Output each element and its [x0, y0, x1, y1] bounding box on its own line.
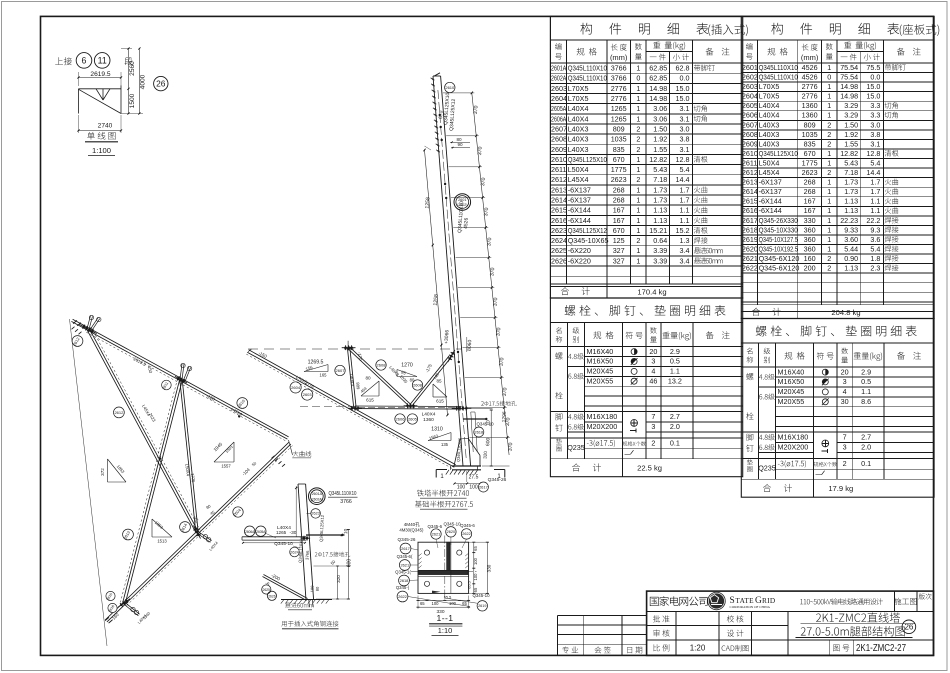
- svg-text:+3066: +3066: [444, 329, 451, 344]
- svg-text:90: 90: [457, 142, 463, 147]
- svg-text:2615: 2615: [551, 206, 567, 215]
- svg-text:330: 330: [804, 216, 816, 225]
- svg-text:1258: 1258: [433, 294, 440, 306]
- svg-text:2604: 2604: [551, 94, 567, 103]
- svg-text:3.0: 3.0: [680, 125, 690, 134]
- svg-text:2: 2: [827, 264, 831, 273]
- svg-text:20: 20: [841, 367, 849, 376]
- svg-text:65.5: 65.5: [468, 581, 472, 588]
- svg-text:160: 160: [804, 254, 816, 263]
- svg-text:L70X5: L70X5: [568, 84, 589, 93]
- svg-text:Q345L110X10: Q345L110X10: [568, 64, 607, 73]
- svg-text:1:100: 1:100: [92, 146, 111, 155]
- svg-text:2.0: 2.0: [670, 422, 680, 431]
- svg-text:65: 65: [462, 601, 467, 606]
- svg-text:370: 370: [486, 237, 493, 246]
- svg-text:TATE: TATE: [735, 596, 754, 605]
- svg-text:12.8: 12.8: [676, 155, 690, 164]
- svg-text:3.1: 3.1: [680, 114, 690, 123]
- svg-text:835: 835: [613, 145, 625, 154]
- svg-text:370: 370: [483, 207, 490, 216]
- svg-text:1360: 1360: [802, 111, 818, 120]
- svg-text:1.1: 1.1: [670, 367, 680, 376]
- svg-text:Q345-26: Q345-26: [398, 537, 416, 542]
- svg-text:1: 1: [636, 216, 640, 225]
- svg-text:3: 3: [651, 422, 655, 431]
- svg-text:2620: 2620: [742, 244, 758, 253]
- svg-text:1360: 1360: [802, 101, 818, 110]
- svg-text:100: 100: [457, 485, 466, 491]
- svg-text:2604: 2604: [742, 92, 758, 101]
- svg-text:2619: 2619: [478, 604, 486, 608]
- svg-text:L40X3: L40X3: [759, 120, 780, 129]
- svg-text:125: 125: [613, 236, 625, 245]
- svg-text:Q345-6: Q345-6: [460, 523, 475, 528]
- svg-text:2621: 2621: [400, 562, 409, 567]
- svg-text:-6X137: -6X137: [759, 178, 782, 187]
- svg-text:2603: 2603: [551, 84, 567, 93]
- svg-text:1.55: 1.55: [653, 145, 667, 154]
- svg-text:L50X4: L50X4: [568, 165, 589, 174]
- svg-text:2601A: 2601A: [312, 492, 323, 496]
- svg-text:2617: 2617: [479, 484, 489, 489]
- svg-text:L40X4: L40X4: [568, 104, 589, 113]
- svg-text:1360: 1360: [423, 417, 434, 423]
- svg-text:1270: 1270: [401, 363, 413, 369]
- svg-text:5.43: 5.43: [653, 165, 667, 174]
- svg-text:65: 65: [473, 546, 478, 551]
- svg-text:1.13: 1.13: [844, 264, 858, 273]
- svg-text:17.9 kg: 17.9 kg: [828, 484, 853, 493]
- svg-text:2610: 2610: [551, 155, 567, 164]
- svg-text:13.2: 13.2: [668, 377, 682, 386]
- svg-text:1296: 1296: [501, 411, 508, 423]
- svg-text:2776: 2776: [802, 92, 818, 101]
- svg-text:20: 20: [649, 347, 657, 356]
- svg-text:370: 370: [489, 267, 496, 276]
- svg-text:7: 7: [843, 433, 847, 442]
- svg-text:2.9: 2.9: [670, 347, 680, 356]
- svg-text:2621: 2621: [432, 532, 440, 536]
- svg-text:2560: 2560: [129, 61, 136, 76]
- svg-text:1:10: 1:10: [438, 626, 452, 635]
- svg-text:(2602A): (2602A): [311, 497, 323, 501]
- svg-text:22.23: 22.23: [840, 216, 858, 225]
- svg-text:14.98: 14.98: [840, 92, 858, 101]
- svg-text:1775: 1775: [190, 473, 196, 483]
- svg-text:Q345L125X12: Q345L125X12: [568, 226, 607, 235]
- svg-text:809: 809: [355, 382, 361, 390]
- svg-text:Q345L110X10: Q345L110X10: [759, 73, 798, 82]
- svg-text:0.1: 0.1: [670, 439, 680, 448]
- svg-text:1.7: 1.7: [680, 196, 690, 205]
- svg-text:3.29: 3.29: [844, 101, 858, 110]
- svg-text:2623: 2623: [802, 168, 818, 177]
- svg-text:2608: 2608: [742, 130, 758, 139]
- svg-text:1310: 1310: [431, 427, 443, 433]
- svg-text:M20X200: M20X200: [778, 443, 809, 452]
- svg-text:62.8: 62.8: [676, 64, 690, 73]
- svg-text:1265: 1265: [276, 530, 287, 535]
- svg-text:2618: 2618: [474, 429, 484, 434]
- svg-text:2621: 2621: [742, 254, 758, 263]
- svg-text:2617: 2617: [742, 216, 758, 225]
- svg-text:2617: 2617: [401, 546, 410, 551]
- svg-text:L40X3: L40X3: [568, 135, 589, 144]
- svg-text:2740: 2740: [98, 123, 113, 130]
- svg-text:L40X4: L40X4: [568, 114, 589, 123]
- svg-text:2613: 2613: [551, 185, 567, 194]
- svg-text:1: 1: [827, 187, 831, 196]
- svg-text:2607: 2607: [551, 125, 567, 134]
- svg-text:10: 10: [485, 420, 490, 426]
- svg-text:0: 0: [636, 74, 640, 83]
- svg-text:2601A: 2601A: [551, 64, 566, 73]
- svg-text:1.7: 1.7: [680, 185, 690, 194]
- svg-text:2.3: 2.3: [870, 264, 880, 273]
- svg-text:2606A: 2606A: [245, 530, 255, 534]
- svg-text:2605A: 2605A: [551, 104, 566, 113]
- svg-text:4M30(Q345): 4M30(Q345): [399, 527, 424, 532]
- svg-text:670: 670: [613, 226, 625, 235]
- svg-text:15.21: 15.21: [649, 226, 667, 235]
- svg-text:2623: 2623: [551, 226, 567, 235]
- svg-text:15.0: 15.0: [866, 92, 880, 101]
- svg-text:L40X4: L40X4: [759, 101, 780, 110]
- svg-text:15.0: 15.0: [676, 94, 690, 103]
- svg-text:5.4: 5.4: [680, 165, 690, 174]
- svg-text:-6X220: -6X220: [568, 246, 591, 255]
- svg-text:268: 268: [804, 178, 816, 187]
- svg-text:-6X144: -6X144: [759, 197, 782, 206]
- svg-text:M16X50: M16X50: [778, 377, 805, 386]
- svg-text:2626: 2626: [551, 256, 567, 265]
- svg-text:5.44: 5.44: [844, 244, 858, 253]
- svg-text:100: 100: [469, 485, 478, 491]
- svg-text:62.85: 62.85: [649, 64, 667, 73]
- svg-text:3.0: 3.0: [870, 120, 880, 129]
- svg-text:0.64: 0.64: [653, 236, 667, 245]
- svg-text:1: 1: [636, 256, 640, 265]
- svg-text:2623: 2623: [311, 512, 319, 516]
- svg-text:2.7: 2.7: [670, 412, 680, 421]
- svg-text:M20X200: M20X200: [587, 422, 618, 431]
- svg-text:2609: 2609: [742, 139, 758, 148]
- svg-text:2: 2: [827, 168, 831, 177]
- svg-text:3.8: 3.8: [870, 130, 880, 139]
- svg-text:2.0: 2.0: [861, 443, 871, 452]
- svg-text:12.82: 12.82: [840, 149, 858, 158]
- svg-text:1.73: 1.73: [844, 187, 858, 196]
- svg-text:327: 327: [613, 256, 625, 265]
- svg-text:65.5: 65.5: [444, 596, 451, 600]
- svg-text:600: 600: [485, 437, 492, 446]
- svg-text:2605A: 2605A: [256, 530, 266, 534]
- svg-text:1: 1: [827, 235, 831, 244]
- svg-text:Q345L110X10: Q345L110X10: [759, 63, 798, 72]
- svg-text:Q345-1(: Q345-1(: [395, 570, 411, 575]
- svg-text:8.6: 8.6: [861, 397, 871, 406]
- svg-text:Q345-10: Q345-10: [274, 541, 293, 547]
- svg-text:RID: RID: [762, 596, 775, 605]
- svg-text:0.0: 0.0: [680, 74, 690, 83]
- svg-text:2601: 2601: [742, 63, 758, 72]
- svg-text:2606: 2606: [742, 111, 758, 120]
- svg-text:-6X137: -6X137: [568, 185, 591, 194]
- svg-text:M20X45: M20X45: [587, 367, 614, 376]
- svg-text:14.4: 14.4: [676, 175, 690, 184]
- svg-text:12.82: 12.82: [649, 155, 667, 164]
- svg-text:80: 80: [365, 376, 371, 381]
- svg-text:1513: 1513: [157, 539, 167, 544]
- svg-text:1035: 1035: [611, 135, 627, 144]
- svg-text:15.0: 15.0: [676, 84, 690, 93]
- svg-text:3.1: 3.1: [680, 104, 690, 113]
- svg-text:3.39: 3.39: [653, 246, 667, 255]
- svg-text:5.4: 5.4: [870, 159, 880, 168]
- svg-text:1.92: 1.92: [844, 130, 858, 139]
- svg-text:Q345-6X120: Q345-6X120: [759, 254, 800, 263]
- svg-text:0.0: 0.0: [870, 73, 880, 82]
- svg-text:1: 1: [827, 149, 831, 158]
- svg-text:-6X137: -6X137: [568, 196, 591, 205]
- svg-text:1: 1: [827, 101, 831, 110]
- svg-text:Q345L110X10: Q345L110X10: [568, 74, 607, 83]
- svg-text:7.18: 7.18: [653, 175, 667, 184]
- svg-text:1557: 1557: [221, 464, 231, 469]
- svg-text:2602: 2602: [742, 73, 758, 82]
- svg-text:2609: 2609: [551, 145, 567, 154]
- svg-text:167: 167: [613, 216, 625, 225]
- svg-text:4000: 4000: [139, 74, 146, 89]
- svg-text:2: 2: [827, 130, 831, 139]
- svg-text:1.13: 1.13: [653, 216, 667, 225]
- svg-text:Q345-10X330: Q345-10X330: [759, 225, 798, 234]
- svg-text:30: 30: [841, 397, 849, 406]
- svg-text:1: 1: [636, 94, 640, 103]
- svg-text:268: 268: [613, 185, 625, 194]
- svg-text:372: 372: [100, 468, 105, 476]
- svg-text:2603: 2603: [303, 392, 313, 397]
- svg-text:Q345-26X330: Q345-26X330: [759, 216, 798, 225]
- svg-text:65: 65: [473, 587, 478, 592]
- svg-text:3.29: 3.29: [844, 111, 858, 120]
- svg-text:1.3: 1.3: [680, 236, 690, 245]
- svg-text:2: 2: [636, 236, 640, 245]
- svg-text:1.73: 1.73: [653, 185, 667, 194]
- svg-text:46: 46: [649, 377, 657, 386]
- svg-text:200: 200: [804, 264, 816, 273]
- svg-text:370: 370: [477, 146, 484, 155]
- svg-text:1: 1: [827, 159, 831, 168]
- svg-text:15.0: 15.0: [866, 82, 880, 91]
- svg-text:167: 167: [613, 206, 625, 215]
- svg-text:1265: 1265: [611, 104, 627, 113]
- svg-text:1: 1: [827, 225, 831, 234]
- svg-text:268: 268: [613, 196, 625, 205]
- svg-text:1: 1: [636, 226, 640, 235]
- svg-text:370: 370: [480, 177, 487, 186]
- svg-text:2613: 2613: [742, 178, 758, 187]
- svg-text:L40X3: L40X3: [568, 145, 589, 154]
- svg-text:2624: 2624: [290, 550, 298, 554]
- svg-text:2619.5: 2619.5: [90, 71, 111, 78]
- svg-text:2.9: 2.9: [861, 367, 871, 376]
- svg-text:2605: 2605: [408, 416, 418, 421]
- svg-text:M16X40: M16X40: [778, 367, 805, 376]
- svg-text:2607: 2607: [336, 368, 346, 373]
- svg-text:5.4: 5.4: [870, 244, 880, 253]
- svg-text:L70X5: L70X5: [759, 92, 780, 101]
- svg-text:165: 165: [320, 373, 328, 378]
- svg-text:Q345-6(: Q345-6(: [397, 554, 413, 559]
- svg-text:1:20: 1:20: [690, 644, 706, 653]
- svg-text:(mm): (mm): [610, 53, 628, 62]
- svg-text:L40X4: L40X4: [759, 111, 780, 120]
- svg-text:26: 26: [904, 623, 913, 632]
- svg-text:2776: 2776: [611, 94, 627, 103]
- svg-text:2: 2: [827, 120, 831, 129]
- svg-text:2604: 2604: [291, 385, 301, 390]
- svg-text:2623: 2623: [611, 175, 627, 184]
- svg-text:Q345-10: Q345-10: [443, 521, 461, 526]
- svg-text:0.5: 0.5: [861, 377, 871, 386]
- svg-text:167: 167: [804, 206, 816, 215]
- svg-text:11: 11: [98, 55, 107, 65]
- svg-text:1: 1: [636, 165, 640, 174]
- svg-text:1.1: 1.1: [680, 216, 690, 225]
- svg-text:2616: 2616: [551, 216, 567, 225]
- svg-text:2614: 2614: [551, 196, 567, 205]
- svg-text:3: 3: [843, 377, 847, 386]
- svg-text:Q345-10X65: Q345-10X65: [568, 236, 609, 245]
- svg-text:360: 360: [804, 244, 816, 253]
- svg-text:320: 320: [483, 450, 489, 458]
- svg-text:15.2: 15.2: [676, 226, 690, 235]
- svg-text:2622: 2622: [742, 264, 758, 273]
- svg-text:2: 2: [651, 439, 655, 448]
- svg-text:80: 80: [456, 137, 462, 142]
- svg-text:2603: 2603: [742, 82, 758, 91]
- svg-text:1: 1: [636, 64, 640, 73]
- svg-text:9.3: 9.3: [870, 225, 880, 234]
- svg-text:Q345-26: Q345-26: [488, 477, 507, 483]
- svg-text:Q345-10X127.5: Q345-10X127.5: [759, 235, 798, 244]
- svg-text:1: 1: [636, 246, 640, 255]
- svg-text:-6X144: -6X144: [759, 206, 782, 215]
- svg-text:2776: 2776: [802, 82, 818, 91]
- svg-text:1: 1: [827, 111, 831, 120]
- svg-text:L50X4: L50X4: [759, 159, 780, 168]
- svg-text:2618: 2618: [400, 578, 409, 583]
- svg-text:2620: 2620: [447, 530, 455, 534]
- svg-text:670: 670: [613, 155, 625, 164]
- svg-text:1: 1: [827, 63, 831, 72]
- svg-text:Q345-(: Q345-(: [396, 585, 410, 590]
- svg-text:2: 2: [827, 254, 831, 263]
- svg-text:-6X144: -6X144: [568, 216, 591, 225]
- svg-text:2612: 2612: [551, 175, 567, 184]
- svg-text:2608: 2608: [377, 362, 387, 367]
- svg-text:809: 809: [613, 125, 625, 134]
- svg-text:1.55: 1.55: [844, 139, 858, 148]
- svg-text:3.3: 3.3: [870, 111, 880, 120]
- svg-text:-6X144: -6X144: [568, 206, 591, 215]
- svg-text:3766: 3766: [611, 64, 627, 73]
- svg-text:1.73: 1.73: [653, 196, 667, 205]
- svg-text:2611: 2611: [742, 159, 757, 168]
- svg-text:835: 835: [804, 139, 816, 148]
- svg-text:1.1: 1.1: [870, 197, 880, 206]
- svg-text:327: 327: [613, 246, 625, 255]
- svg-text:670: 670: [804, 149, 816, 158]
- svg-text:360: 360: [804, 225, 816, 234]
- svg-text:2612: 2612: [742, 168, 758, 177]
- svg-text:330: 330: [486, 564, 491, 572]
- svg-text:1.73: 1.73: [844, 178, 858, 187]
- svg-text:2624: 2624: [551, 236, 567, 245]
- svg-text:Q345L125X10: Q345L125X10: [759, 149, 798, 158]
- svg-text:1: 1: [636, 185, 640, 194]
- svg-text:12.8: 12.8: [866, 149, 880, 158]
- svg-text:1500: 1500: [129, 93, 136, 108]
- svg-text:8060: 8060: [467, 339, 474, 351]
- svg-text:1.13: 1.13: [653, 206, 667, 215]
- svg-text:3.8: 3.8: [680, 135, 690, 144]
- svg-text:1775: 1775: [611, 165, 627, 174]
- svg-text:3766: 3766: [340, 499, 352, 505]
- svg-text:2606: 2606: [396, 416, 406, 421]
- svg-text:M20X45: M20X45: [778, 387, 805, 396]
- svg-text:1.50: 1.50: [653, 125, 667, 134]
- svg-text:1: 1: [636, 84, 640, 93]
- svg-text:3.39: 3.39: [653, 256, 667, 265]
- svg-text:1: 1: [827, 244, 831, 253]
- svg-text:1258: 1258: [425, 197, 432, 209]
- svg-text:2776: 2776: [611, 84, 627, 93]
- svg-text:Q345-6X120: Q345-6X120: [759, 264, 800, 273]
- svg-text:615: 615: [436, 399, 444, 404]
- svg-text:2602A: 2602A: [551, 74, 566, 83]
- svg-text:1265: 1265: [611, 114, 627, 123]
- svg-text:1775: 1775: [802, 159, 818, 168]
- svg-text:1.1: 1.1: [680, 206, 690, 215]
- svg-text:1.13: 1.13: [844, 206, 858, 215]
- svg-text:Q345L125X10: Q345L125X10: [568, 155, 607, 164]
- svg-text:2608: 2608: [551, 135, 567, 144]
- svg-text:2622: 2622: [462, 532, 470, 536]
- svg-text:370: 370: [502, 387, 509, 396]
- svg-text:1: 1: [827, 206, 831, 215]
- svg-text:L45X4: L45X4: [759, 168, 780, 177]
- svg-text:100: 100: [432, 601, 440, 606]
- svg-text:1.8: 1.8: [870, 254, 880, 263]
- svg-text:Q345L110X10: Q345L110X10: [329, 491, 357, 497]
- svg-text:1--1: 1--1: [437, 613, 454, 623]
- svg-text:1.13: 1.13: [844, 197, 858, 206]
- svg-text:3: 3: [651, 357, 655, 366]
- svg-text:6: 6: [82, 55, 87, 65]
- svg-text:100: 100: [473, 573, 478, 581]
- svg-text:7.18: 7.18: [844, 168, 858, 177]
- svg-text:4526: 4526: [802, 63, 818, 72]
- svg-text:-30: -30: [290, 530, 297, 536]
- svg-text:L70X5: L70X5: [568, 94, 589, 103]
- svg-text:3.4: 3.4: [680, 256, 690, 265]
- svg-text:2615: 2615: [742, 197, 758, 206]
- svg-text:M20X55: M20X55: [778, 397, 805, 406]
- svg-text:2610: 2610: [445, 85, 455, 90]
